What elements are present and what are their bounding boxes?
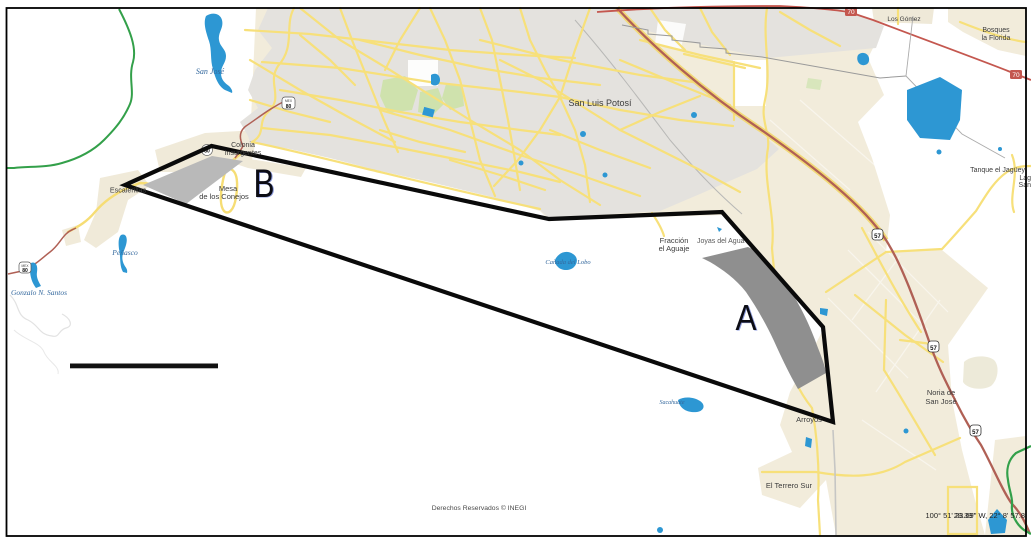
svg-text:57: 57: [930, 346, 937, 352]
svg-text:San Luis Potosí: San Luis Potosí: [568, 98, 632, 108]
svg-text:San José: San José: [925, 397, 956, 406]
svg-text:Arroyos: Arroyos: [796, 415, 822, 424]
svg-text:57: 57: [874, 234, 881, 240]
svg-text:A: A: [736, 297, 757, 338]
svg-text:70: 70: [1012, 72, 1020, 79]
svg-text:Los Gómez: Los Gómez: [887, 16, 920, 23]
svg-text:B: B: [254, 162, 275, 206]
svg-text:el Aguaje: el Aguaje: [659, 244, 690, 253]
svg-text:la Florida: la Florida: [982, 35, 1011, 42]
svg-text:Cañada del Lobo: Cañada del Lobo: [545, 259, 591, 266]
svg-text:El Terrero Sur: El Terrero Sur: [766, 481, 813, 490]
svg-text:Colonia: Colonia: [231, 142, 255, 149]
svg-text:Peñasco: Peñasco: [111, 248, 138, 257]
svg-text:Bosques: Bosques: [982, 27, 1010, 34]
svg-text:San: San: [1019, 182, 1031, 189]
svg-text:de los Conejos: de los Conejos: [199, 192, 249, 201]
svg-text:Tanque el Jagüey: Tanque el Jagüey: [970, 167, 1025, 174]
svg-text:Insurgentes: Insurgentes: [225, 150, 262, 157]
svg-text:MEX: MEX: [285, 99, 293, 103]
svg-text:28.39": 28.39": [954, 511, 976, 520]
svg-text:70: 70: [847, 9, 855, 16]
svg-text:Derechos Reservados © INEGI: Derechos Reservados © INEGI: [432, 504, 527, 512]
svg-text:Joyas del Agua: Joyas del Agua: [697, 238, 745, 245]
svg-text:80: 80: [286, 104, 292, 110]
svg-text:100° 51' 23.69" W, 22° 8' 57.8: 100° 51' 23.69" W, 22° 8' 57.8: [925, 511, 1025, 520]
svg-text:Noria de: Noria de: [927, 388, 955, 397]
svg-text:80: 80: [22, 268, 28, 274]
svg-text:Sacahuate: Sacahuate: [660, 400, 685, 406]
svg-text:Escalerillas: Escalerillas: [110, 186, 147, 195]
svg-text:San José: San José: [196, 67, 225, 76]
svg-text:57: 57: [972, 430, 979, 436]
svg-text:Gonzalo N. Santos: Gonzalo N. Santos: [11, 288, 67, 297]
